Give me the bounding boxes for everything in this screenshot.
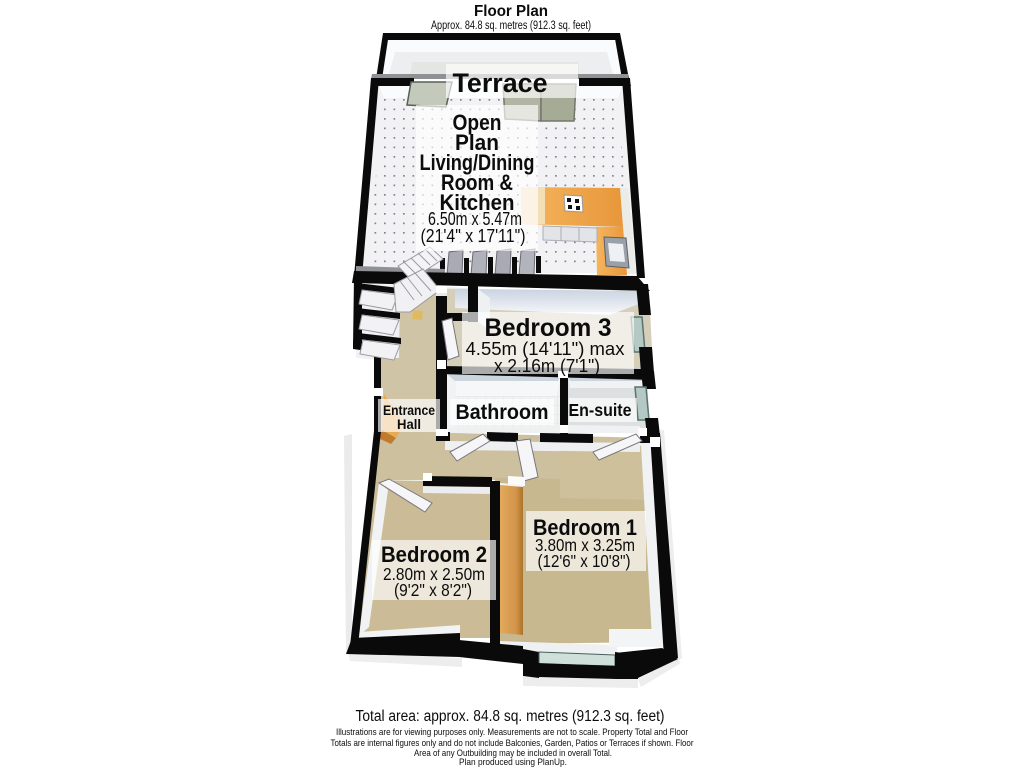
svg-text:Hall: Hall [397,416,421,432]
svg-text:Plan produced using PlanUp.: Plan produced using PlanUp. [459,757,567,768]
svg-text:Illustrations are for viewing: Illustrations are for viewing purposes o… [336,727,688,738]
svg-text:x 2.16m (7'1"): x 2.16m (7'1") [494,355,600,376]
svg-text:En-suite: En-suite [569,400,632,420]
svg-text:(9'2" x 8'2"): (9'2" x 8'2") [394,580,472,600]
svg-text:(21'4" x 17'11"): (21'4" x 17'11") [421,226,526,246]
svg-text:Bathroom: Bathroom [456,401,549,424]
svg-text:Approx. 84.8 sq. metres (912.3: Approx. 84.8 sq. metres (912.3 sq. feet) [431,20,591,32]
svg-text:Floor Plan: Floor Plan [474,3,548,20]
svg-text:(12'6" x 10'8"): (12'6" x 10'8") [538,551,631,571]
svg-text:Terrace: Terrace [453,68,548,98]
svg-text:Total area: approx. 84.8 sq. m: Total area: approx. 84.8 sq. metres (912… [356,708,665,725]
